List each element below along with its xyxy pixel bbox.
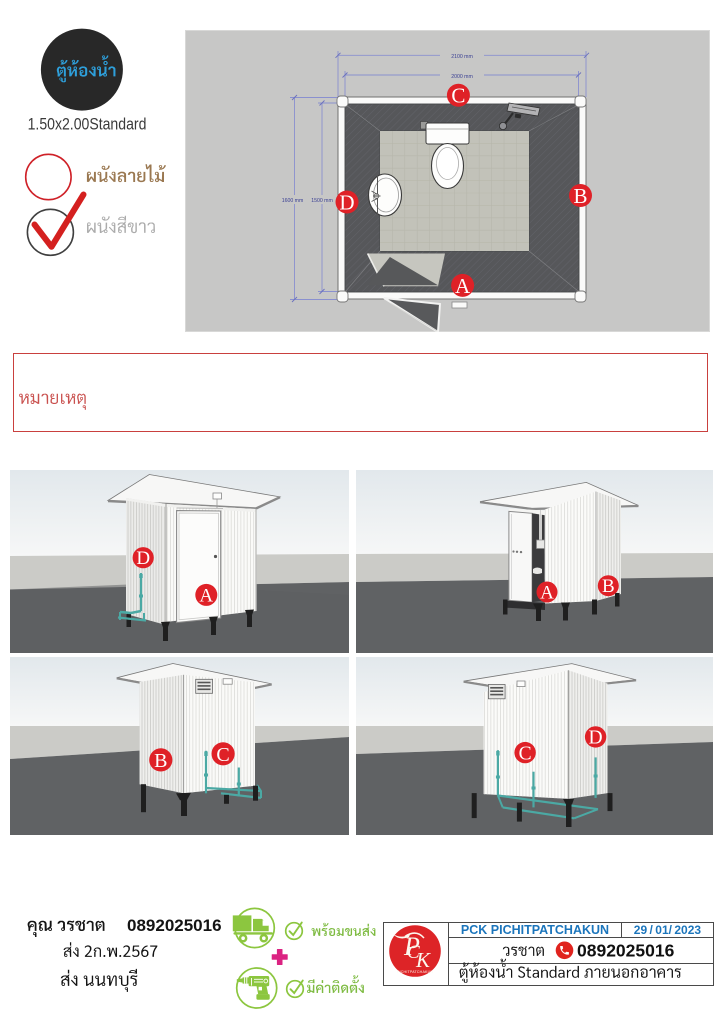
svg-text:0892025016: 0892025016 — [127, 916, 222, 935]
svg-text:1.50x2.00Standard: 1.50x2.00Standard — [28, 116, 147, 134]
